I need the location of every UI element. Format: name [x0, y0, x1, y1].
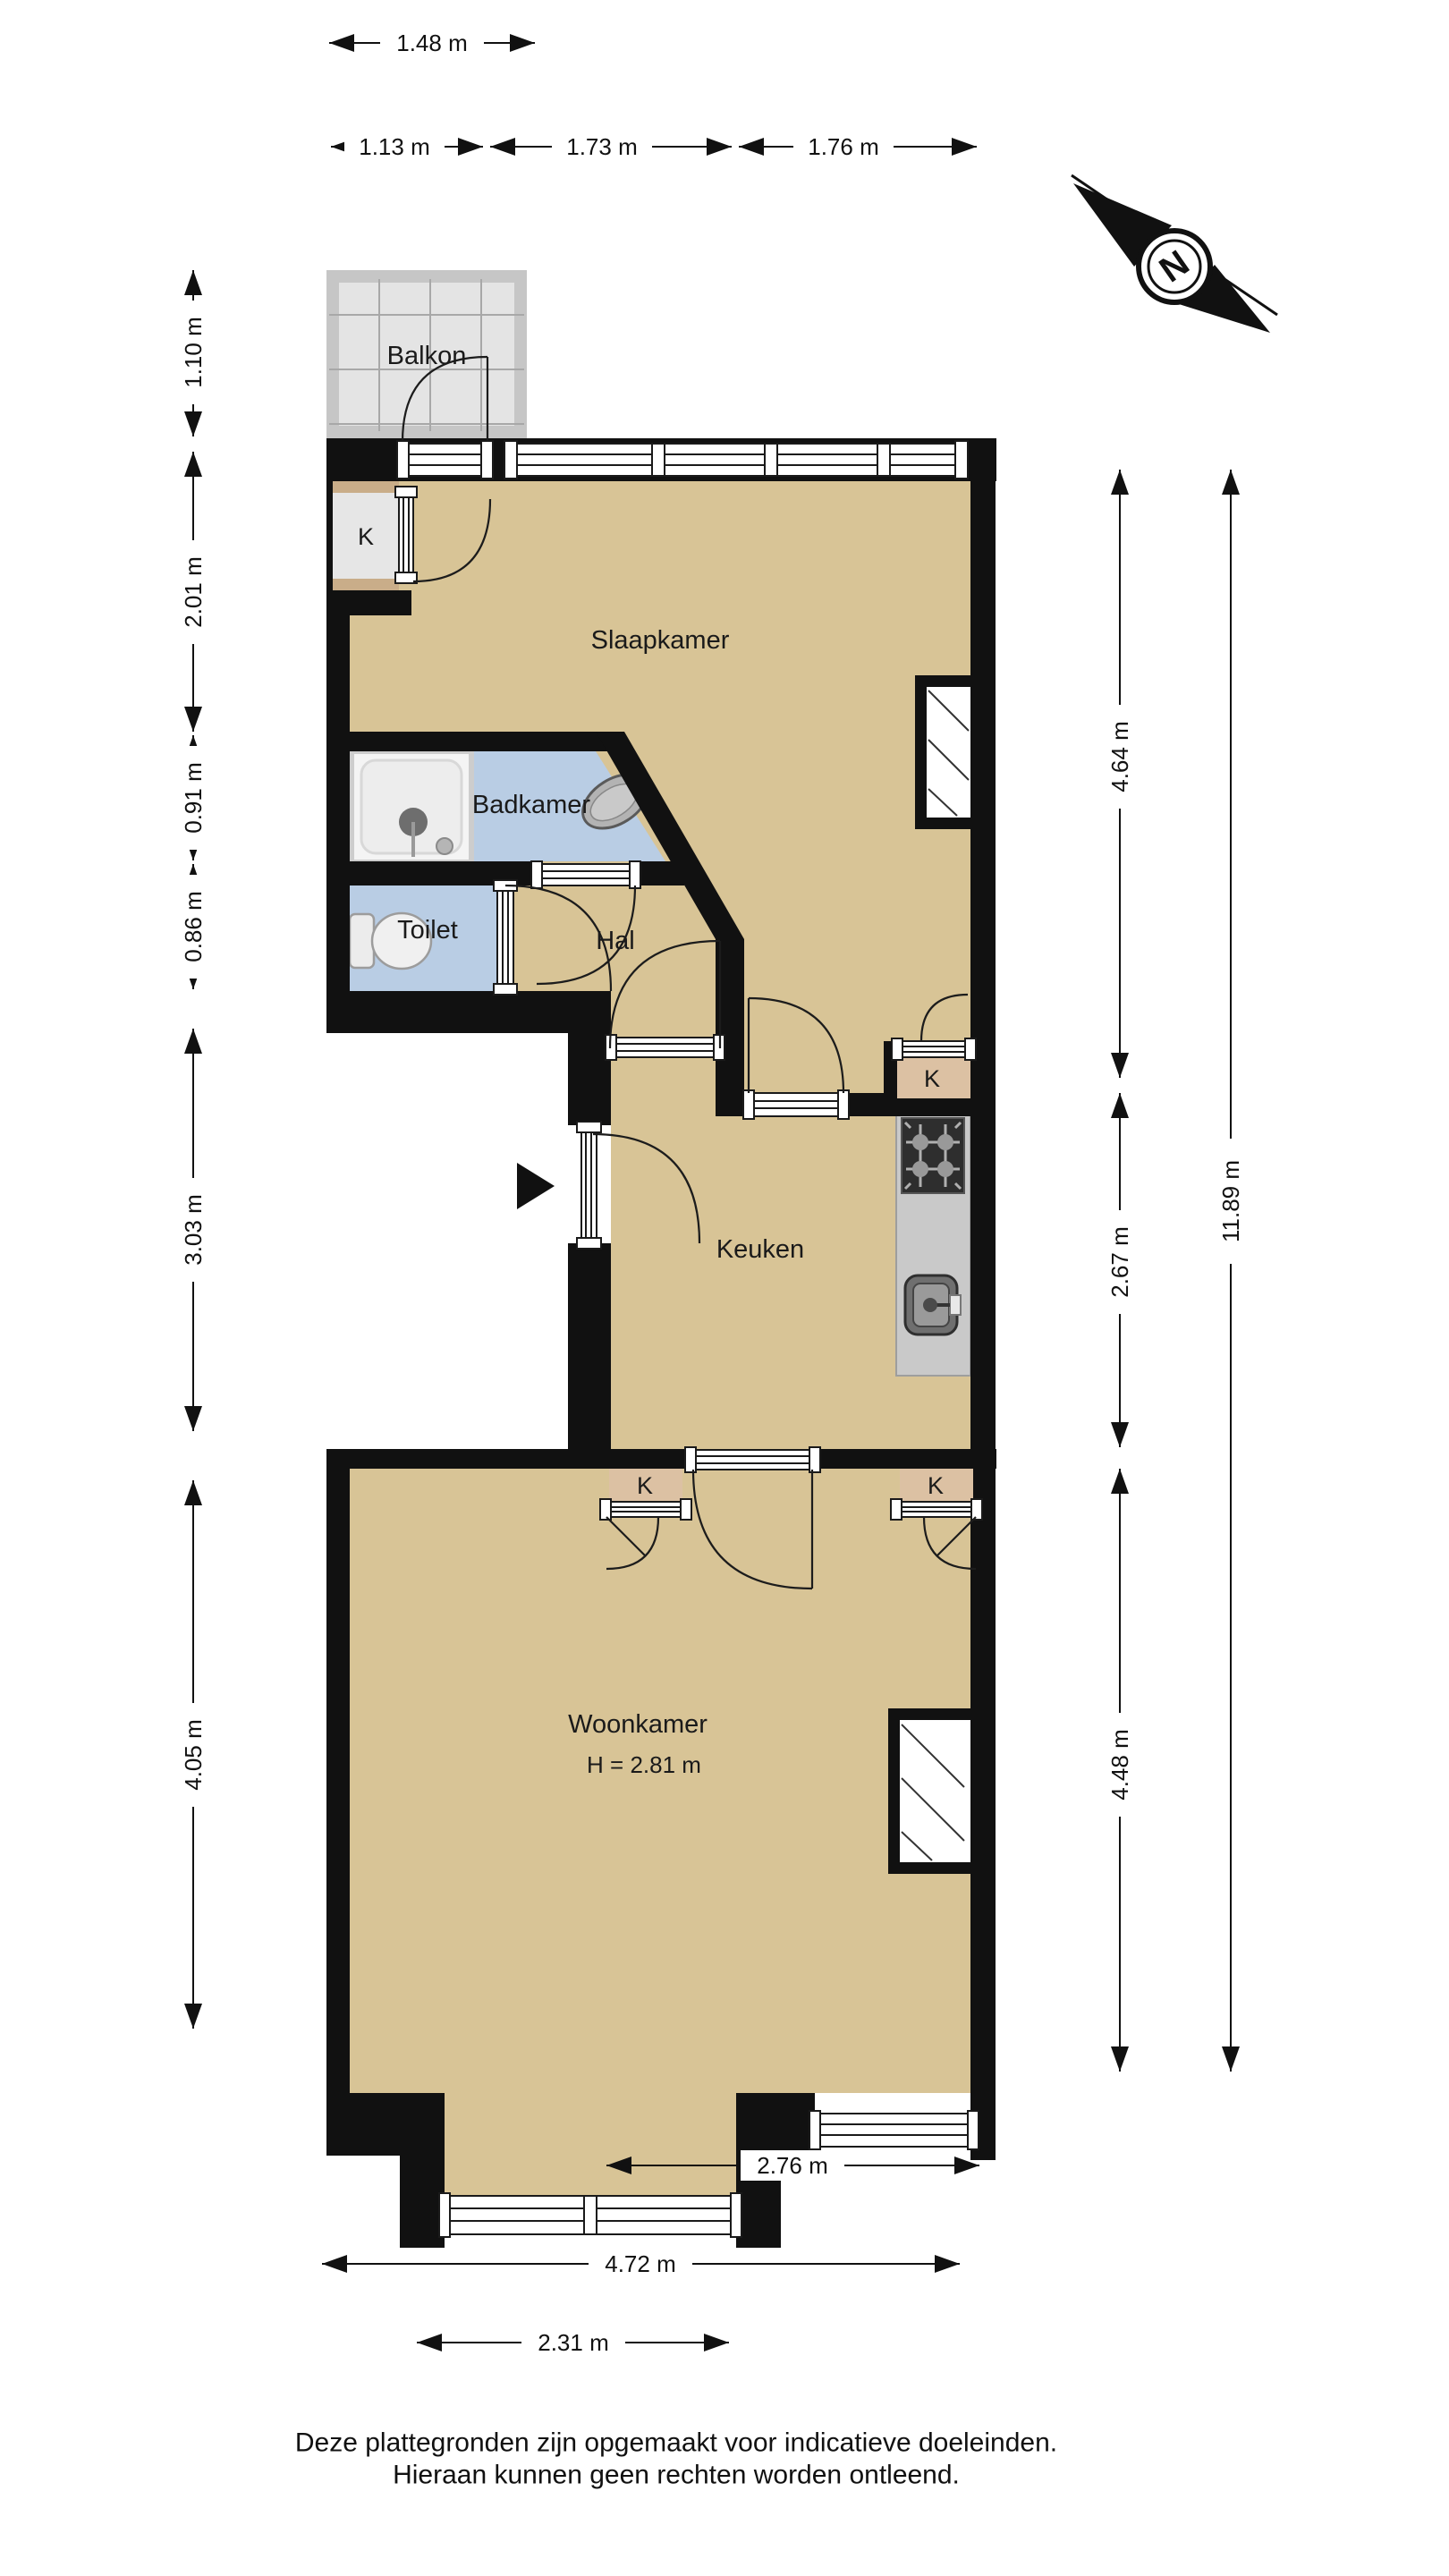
toilet-door-frame — [494, 880, 517, 995]
bedroom-closet-frame — [395, 487, 417, 583]
svg-text:4.72 m: 4.72 m — [605, 2250, 676, 2277]
shower — [352, 751, 471, 862]
entrance-arrow-icon — [517, 1163, 555, 1209]
svg-text:4.64 m: 4.64 m — [1106, 721, 1133, 792]
svg-text:2.01 m: 2.01 m — [180, 556, 207, 628]
svg-text:2.76 m: 2.76 m — [757, 2152, 828, 2179]
dim-top-3: 1.76 m — [739, 131, 977, 162]
dim-right-2: 2.67 m — [1105, 1093, 1135, 1447]
stove — [902, 1118, 964, 1193]
shower-head — [436, 838, 453, 854]
svg-text:1.48 m: 1.48 m — [396, 30, 468, 56]
entrance-door-frame — [577, 1122, 601, 1249]
label-badkamer: Badkamer — [472, 791, 591, 819]
label-toilet: Toilet — [397, 916, 458, 945]
dim-balcony-width: 1.48 m — [329, 28, 535, 58]
svg-text:1.76 m: 1.76 m — [808, 133, 879, 160]
dim-top-1: 1.13 m — [331, 131, 483, 162]
shaft-livingroom — [888, 1708, 973, 1874]
hall-door-frame — [606, 1035, 724, 1060]
bedroom-door-frame — [743, 1090, 849, 1119]
dim-right-3: 4.48 m — [1105, 1469, 1135, 2072]
label-closet-kitchen: K — [924, 1065, 940, 1092]
label-closet-bedroom: K — [358, 523, 374, 550]
svg-text:4.05 m: 4.05 m — [180, 1719, 207, 1791]
svg-text:4.48 m: 4.48 m — [1106, 1729, 1133, 1801]
dim-top-2: 1.73 m — [490, 131, 732, 162]
footer-disclaimer-line2: Hieraan kunnen geen rechten worden ontle… — [393, 2461, 960, 2490]
livingroom-window — [809, 2111, 979, 2149]
bedroom-window — [504, 441, 968, 479]
dim-left-1: 1.10 m — [178, 270, 208, 436]
label-ceiling-height: H = 2.81 m — [587, 1751, 701, 1778]
bay-window-floor — [445, 2093, 736, 2196]
livingroom-closet-left-frame — [600, 1499, 691, 1520]
dim-left-6: 4.05 m — [178, 1480, 208, 2029]
dim-bottom-2: 4.72 m — [322, 2249, 960, 2279]
label-closet-livingroom-left: K — [637, 1472, 653, 1499]
dim-bottom-3: 2.31 m — [417, 2327, 729, 2358]
label-closet-livingroom-right: K — [928, 1472, 944, 1499]
footer-disclaimer-line1: Deze plattegronden zijn opgemaakt voor i… — [295, 2428, 1057, 2458]
floorplan-page: N Balkon Slaapkamer Badkamer Toilet Hal … — [0, 0, 1449, 2576]
svg-text:2.67 m: 2.67 m — [1106, 1226, 1133, 1298]
svg-text:0.91 m: 0.91 m — [180, 762, 207, 834]
dim-right-1: 4.64 m — [1105, 470, 1135, 1078]
north-arrow-icon: N — [1072, 175, 1277, 333]
svg-text:1.73 m: 1.73 m — [566, 133, 638, 160]
balcony-door-frame — [397, 441, 493, 479]
apartment-floor — [350, 481, 970, 2093]
kitchen-closet-frame — [892, 1038, 976, 1060]
dim-left-5: 3.03 m — [178, 1029, 208, 1431]
label-slaapkamer: Slaapkamer — [591, 626, 730, 655]
dim-left-3: 0.91 m — [178, 735, 208, 860]
svg-text:2.31 m: 2.31 m — [538, 2329, 609, 2356]
bathroom-door-frame — [531, 861, 640, 888]
floorplan-canvas: N Balkon Slaapkamer Badkamer Toilet Hal … — [0, 0, 1449, 2576]
shaft-bedroom — [915, 675, 973, 829]
bay-window — [439, 2193, 741, 2237]
label-hal: Hal — [596, 927, 635, 955]
label-balkon: Balkon — [387, 342, 467, 370]
svg-text:1.13 m: 1.13 m — [359, 133, 430, 160]
kitchen-sink — [905, 1275, 961, 1335]
livingroom-closet-right-frame — [891, 1499, 982, 1520]
livingroom-door-frame — [685, 1447, 820, 1472]
svg-text:11.89 m: 11.89 m — [1217, 1160, 1244, 1242]
svg-text:0.86 m: 0.86 m — [180, 891, 207, 962]
label-keuken: Keuken — [716, 1235, 804, 1264]
svg-text:1.10 m: 1.10 m — [180, 317, 207, 388]
kitchen-counter — [896, 1102, 970, 1376]
dim-left-2: 2.01 m — [178, 452, 208, 732]
label-woonkamer: Woonkamer — [568, 1710, 708, 1739]
dim-right-total: 11.89 m — [1216, 470, 1246, 2072]
svg-text:3.03 m: 3.03 m — [180, 1194, 207, 1266]
dim-left-4: 0.86 m — [178, 864, 208, 989]
